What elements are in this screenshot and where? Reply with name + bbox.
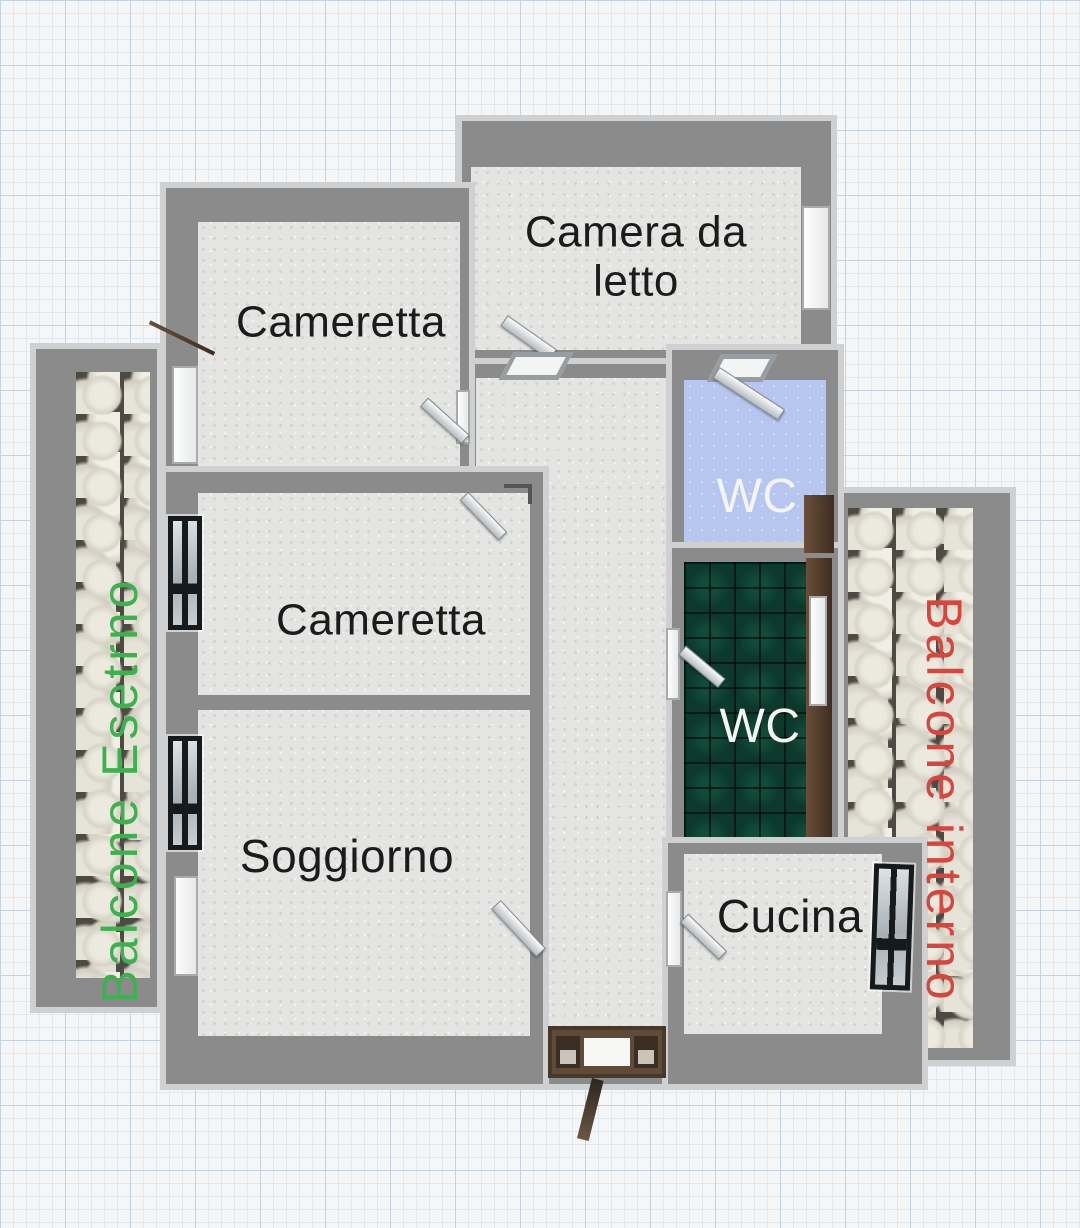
label-cucina: Cucina [717,891,863,943]
french-window-icon [168,736,202,850]
bedroom-door-icon [802,206,830,310]
french-window-icon [870,863,914,990]
label-balcone-esterno: Balcone Esetrno [91,577,149,1004]
balcony-door-icon [174,876,198,976]
wardrobe-icon [804,495,834,553]
label-wc-blue: WC [717,470,798,524]
wc-green-window-icon [809,596,827,706]
corridor-floor-lower [537,482,670,1036]
cameretta-mid-floor [198,493,530,695]
label-balcone-interno: Balcone interno [915,596,973,1003]
entrance-door-glass [584,1038,630,1066]
door-panel-icon [666,891,682,967]
entrance-door-panel [556,1036,580,1068]
label-cameretta-top: Cameretta [236,297,446,346]
label-cameretta-mid: Cameretta [276,595,486,644]
label-camera-da-letto: Camera da letto [491,208,781,307]
french-window-icon [168,516,202,630]
entrance-door-icon [548,1026,666,1078]
entrance-door-panel-inset [560,1050,576,1064]
balcony-door-icon [172,366,198,464]
entrance-door-panel-inset [638,1050,654,1064]
left-wing-area [166,472,543,1084]
corridor-floor-upper [476,378,670,482]
entrance-door-panel [634,1036,658,1068]
door-panel-icon [666,628,680,700]
label-wc-green: WC [720,700,801,754]
wc-green-area [672,548,838,850]
label-soggiorno: Soggiorno [240,831,454,883]
entrance-door-leaf-icon [577,1078,604,1141]
floor-plan: Cameretta Camera da letto Cameretta Sogg… [0,0,1080,1228]
door-frame-mark [528,484,532,504]
